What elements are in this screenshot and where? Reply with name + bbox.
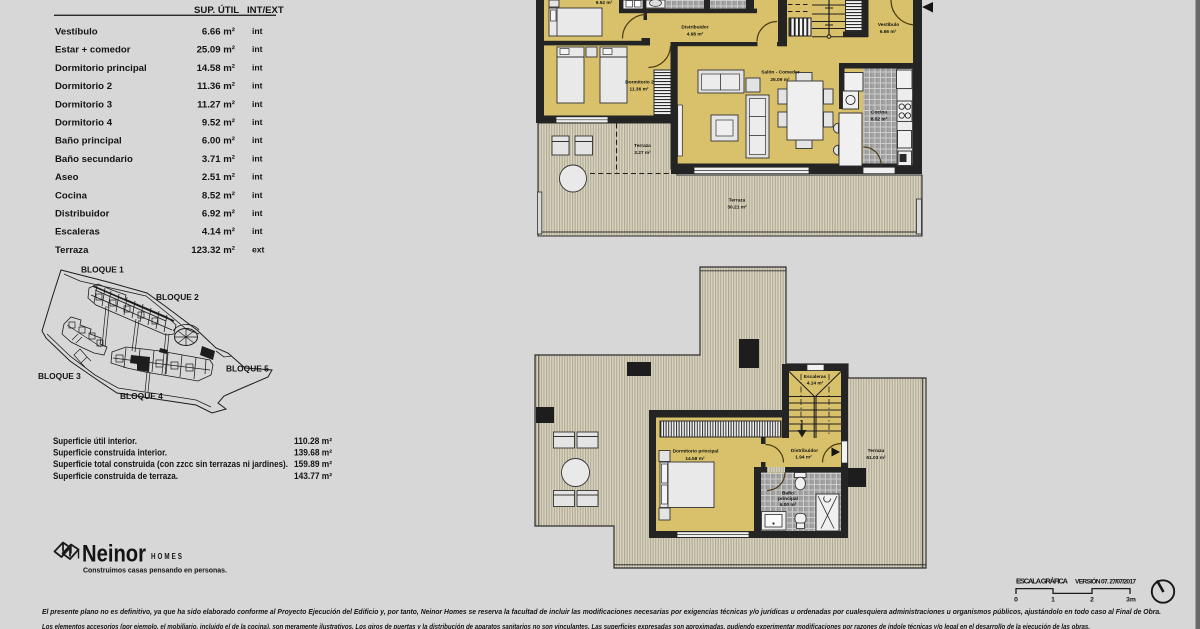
- svg-text:143.77 m²: 143.77 m²: [294, 471, 332, 481]
- svg-text:11.36 m²: 11.36 m²: [197, 81, 235, 92]
- svg-text:159.89 m²: 159.89 m²: [294, 459, 332, 469]
- svg-text:int: int: [252, 190, 263, 200]
- svg-text:BLOQUE 1: BLOQUE 1: [81, 265, 124, 275]
- svg-text:Aseo: Aseo: [55, 172, 79, 183]
- svg-text:Terraza: Terraza: [634, 143, 651, 149]
- svg-text:Distribuidor: Distribuidor: [55, 209, 110, 220]
- svg-text:30.21 m²: 30.21 m²: [727, 205, 747, 211]
- svg-text:6.92 m²: 6.92 m²: [202, 209, 235, 220]
- svg-text:int: int: [252, 172, 263, 182]
- svg-text:Distribuidor: Distribuidor: [681, 25, 708, 31]
- svg-text:int: int: [252, 99, 263, 109]
- svg-text:int: int: [252, 226, 263, 236]
- svg-text:Superficie total construida (c: Superficie total construida (con zzcc si…: [53, 459, 288, 469]
- svg-text:Superficie útil interior.: Superficie útil interior.: [53, 436, 137, 446]
- svg-text:int: int: [252, 44, 263, 54]
- svg-text:Dormitorio 2: Dormitorio 2: [625, 80, 654, 86]
- svg-text:4.14 m²: 4.14 m²: [807, 381, 824, 387]
- svg-text:25.09 m²: 25.09 m²: [197, 45, 235, 56]
- svg-text:6.66 m²: 6.66 m²: [202, 27, 235, 38]
- svg-text:Terraza: Terraza: [729, 198, 746, 204]
- svg-text:110.28 m²: 110.28 m²: [294, 436, 332, 446]
- svg-text:HOMES: HOMES: [151, 552, 184, 561]
- svg-text:Escaleras: Escaleras: [804, 374, 827, 380]
- svg-text:int: int: [252, 26, 263, 36]
- svg-text:9.52 m²: 9.52 m²: [596, 0, 613, 6]
- svg-text:3m: 3m: [1126, 597, 1136, 604]
- svg-text:Dormitorio 4: Dormitorio 4: [55, 118, 113, 129]
- svg-text:BLOQUE 4: BLOQUE 4: [120, 391, 163, 401]
- svg-text:Baño secundario: Baño secundario: [55, 154, 133, 165]
- svg-text:El presente plano no es defini: El presente plano no es definitivo, ya q…: [42, 607, 1161, 616]
- svg-text:8.52 m²: 8.52 m²: [202, 190, 235, 201]
- svg-text:6.00 m²: 6.00 m²: [780, 502, 797, 508]
- svg-text:3.71 m²: 3.71 m²: [202, 154, 235, 165]
- svg-text:BLOQUE 2: BLOQUE 2: [156, 292, 199, 302]
- svg-text:61.03 m²: 61.03 m²: [866, 455, 886, 461]
- svg-text:123.32 m²: 123.32 m²: [191, 245, 235, 256]
- svg-text:8.52 m²: 8.52 m²: [871, 117, 888, 123]
- svg-text:14.58 m²: 14.58 m²: [685, 456, 705, 462]
- svg-text:139.68 m²: 139.68 m²: [294, 448, 332, 458]
- svg-text:ext: ext: [252, 244, 265, 254]
- svg-text:4.98 m²: 4.98 m²: [687, 32, 704, 38]
- svg-text:Vestíbulo: Vestíbulo: [878, 22, 899, 28]
- svg-text:11.36 m²: 11.36 m²: [630, 87, 649, 93]
- svg-text:Vestíbulo: Vestíbulo: [55, 27, 98, 38]
- svg-text:int: int: [252, 62, 263, 72]
- svg-text:6.66 m²: 6.66 m²: [880, 29, 897, 35]
- svg-text:1.94 m²: 1.94 m²: [795, 455, 812, 461]
- svg-text:2.51 m²: 2.51 m²: [202, 172, 235, 183]
- svg-text:3.27 m²: 3.27 m²: [634, 150, 651, 156]
- svg-text:ESCALA GRÁFICA: ESCALA GRÁFICA: [1016, 577, 1069, 586]
- svg-text:Los elementos accesorios (por: Los elementos accesorios (por ejemplo, e…: [42, 622, 1090, 629]
- svg-text:Distribuidor: Distribuidor: [791, 448, 818, 454]
- svg-text:Cocina: Cocina: [871, 110, 887, 116]
- svg-text:principal: principal: [778, 496, 798, 502]
- svg-text:Baño principal: Baño principal: [55, 136, 122, 147]
- svg-text:BLOQUE 5: BLOQUE 5: [226, 364, 269, 374]
- svg-text:SUP. ÚTIL: SUP. ÚTIL: [194, 4, 239, 16]
- svg-text:Estar + comedor: Estar + comedor: [55, 45, 131, 56]
- svg-text:BLOQUE 3: BLOQUE 3: [38, 371, 81, 381]
- svg-text:Superficie construida interior: Superficie construida interior.: [53, 448, 167, 458]
- svg-text:int: int: [252, 135, 263, 145]
- svg-text:VERSIÓN 07. 27/07/2017: VERSIÓN 07. 27/07/2017: [1075, 577, 1136, 586]
- svg-text:int: int: [252, 208, 263, 218]
- svg-text:Terraza: Terraza: [55, 245, 89, 256]
- svg-text:Escaleras: Escaleras: [55, 227, 100, 238]
- svg-text:int: int: [252, 153, 263, 163]
- svg-text:Terraza: Terraza: [868, 448, 885, 454]
- svg-text:11.27 m²: 11.27 m²: [197, 99, 235, 110]
- svg-text:Neinor: Neinor: [82, 541, 146, 568]
- svg-text:1: 1: [1051, 597, 1055, 604]
- svg-text:INT/EXT: INT/EXT: [247, 5, 284, 16]
- svg-text:Dormitorio 2: Dormitorio 2: [55, 81, 112, 92]
- svg-text:14.58 m²: 14.58 m²: [197, 63, 235, 74]
- svg-text:int: int: [252, 117, 263, 127]
- svg-text:Dormitorio 3: Dormitorio 3: [55, 99, 112, 110]
- svg-text:Superficie construida de terra: Superficie construida de terraza.: [53, 471, 178, 481]
- svg-text:0: 0: [1014, 597, 1018, 604]
- svg-text:Dormitorio principal: Dormitorio principal: [673, 449, 719, 455]
- svg-text:6.00 m²: 6.00 m²: [202, 136, 235, 147]
- svg-text:25.09 m²: 25.09 m²: [770, 77, 790, 83]
- svg-text:int: int: [252, 81, 263, 91]
- svg-text:Salón - Comedor: Salón - Comedor: [761, 70, 800, 76]
- svg-text:4.14 m²: 4.14 m²: [202, 227, 235, 238]
- svg-text:2: 2: [1090, 597, 1094, 604]
- svg-text:Dormitorio principal: Dormitorio principal: [55, 63, 147, 74]
- svg-text:Cocina: Cocina: [55, 190, 88, 201]
- svg-text:Construimos casas pensando en: Construimos casas pensando en personas.: [83, 566, 227, 575]
- svg-text:Baño: Baño: [782, 491, 794, 497]
- svg-text:9.52 m²: 9.52 m²: [202, 118, 235, 129]
